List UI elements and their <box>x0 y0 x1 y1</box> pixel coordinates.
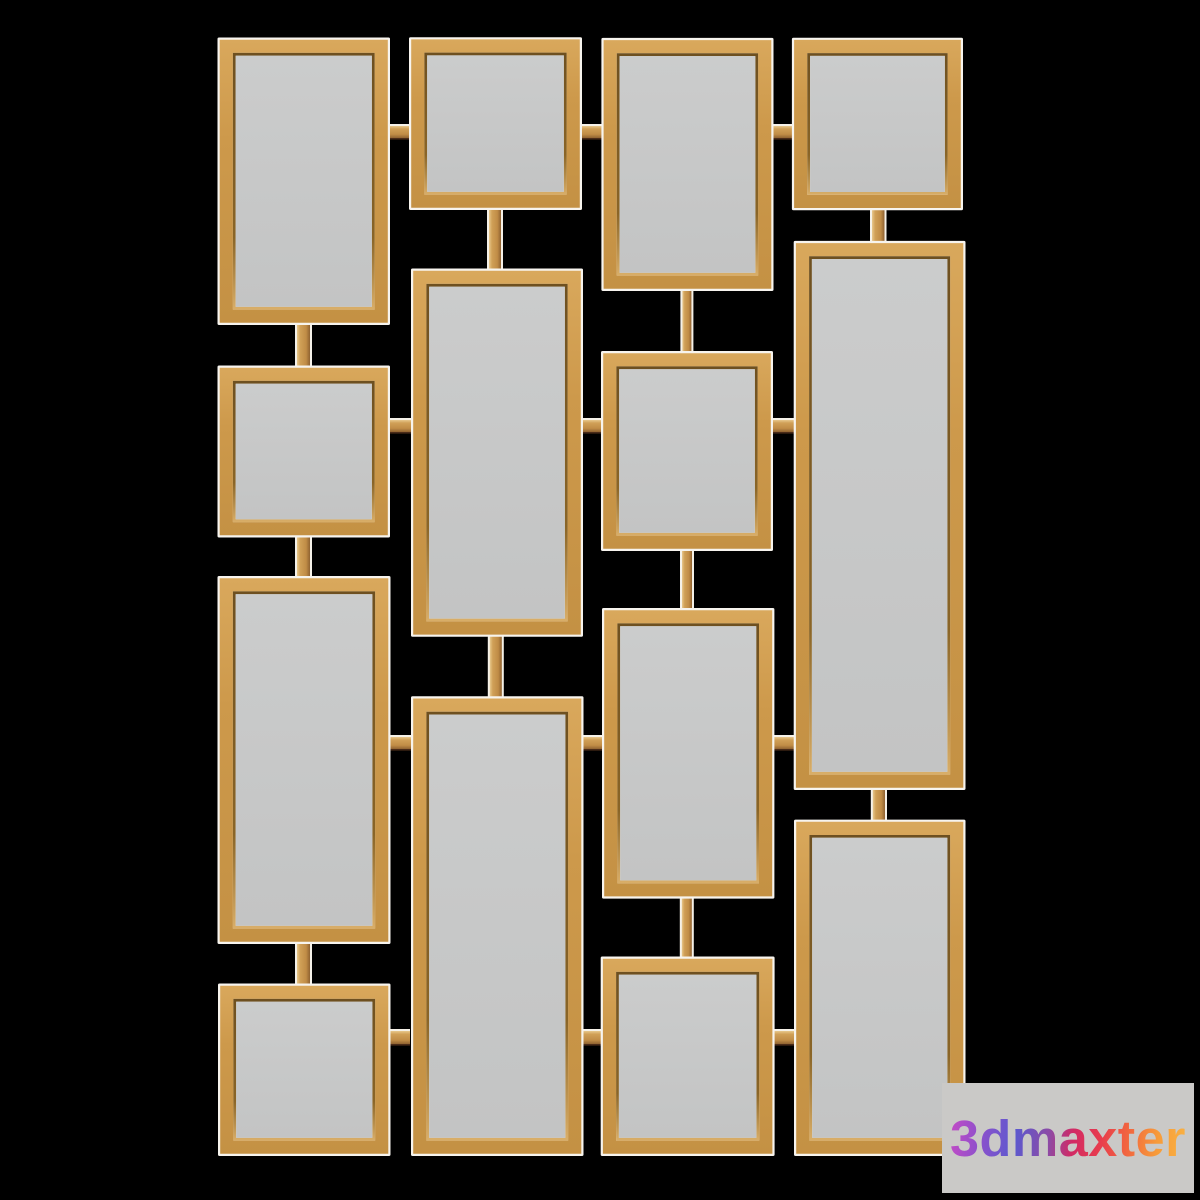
svg-text:3dmaxter: 3dmaxter <box>950 1110 1186 1167</box>
